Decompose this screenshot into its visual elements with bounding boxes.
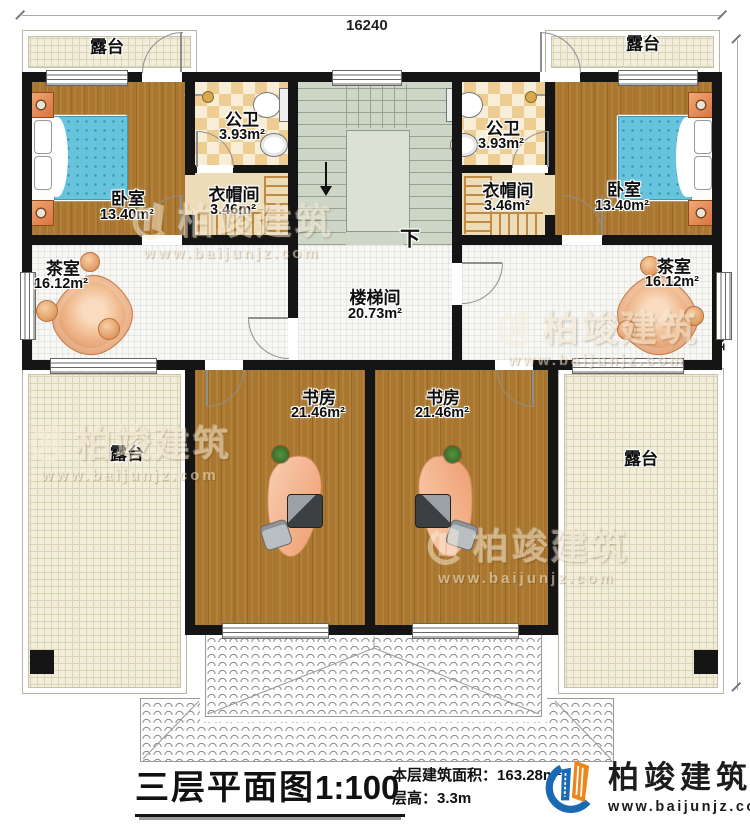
company-logo: 柏竣建筑 www.baijunjz.com [542,752,750,815]
pillow [34,156,52,190]
stair-direction-line [325,162,327,186]
room-area-bedroom-r: 13.40m² [595,198,649,214]
door-opening [205,360,243,370]
door-leaf [462,262,502,264]
window [618,70,698,86]
floor-height-label: 层高： [392,790,437,807]
room-area-bathroom-l: 3.93m² [219,127,265,143]
door-leaf [180,32,182,72]
window [716,272,732,340]
door-leaf [540,32,542,72]
dimension-line-right [737,40,738,690]
wall [452,72,462,370]
company-logo-icon [28,420,70,462]
drawing-info: 本层建筑面积：163.28m² 层高：3.3m [392,764,561,810]
door-leaf [248,317,288,319]
door-leaf [196,131,198,167]
plant-icon [272,446,289,463]
room-label-terrace-br: 露台 [624,445,658,470]
window [50,358,157,374]
company-name: 柏竣建筑 [608,752,750,797]
room-area-stairwell: 20.73m² [348,306,402,322]
room-label-terrace-tl: 露台 [90,33,124,58]
room-area-cloakroom-r: 3.46m² [484,198,530,214]
nightstand [688,200,714,226]
floor-area-label: 本层建筑面积： [392,767,497,784]
wall [185,370,195,635]
roof-tier-inner [205,633,542,717]
pouf [36,300,58,322]
dimension-tick [731,34,741,44]
watermark-company: 柏竣建筑 [473,518,629,570]
watermark-url: www.baijunjz.com [438,570,615,587]
watermark: 柏竣建筑 www.baijunjz.com [28,415,232,484]
door-opening [142,72,182,82]
floor-height-line: 层高：3.3m [392,787,561,810]
company-website: www.baijunjz.com [608,799,750,815]
stair-down-label: 下 [400,223,420,252]
bed-sheet-fold [676,117,694,197]
company-logo-icon [425,523,467,565]
watermark: 柏竣建筑 www.baijunjz.com [495,300,699,369]
room-label-stairwell: 楼梯间 [350,284,401,309]
window [46,70,128,86]
plant-icon [444,446,461,463]
door-leaf [532,370,534,406]
wall [365,370,375,635]
dimension-tick [731,682,741,692]
floor-height-value: 3.3m [437,790,471,807]
room-area-study-l: 21.46m² [291,405,345,421]
wall [548,370,558,635]
room-label-bedroom-r: 卧室 [607,176,641,201]
nightstand [688,92,714,118]
floor-area-line: 本层建筑面积：163.28m² [392,764,561,787]
watermark-company: 柏竣建筑 [543,300,699,352]
pouf [98,318,120,340]
drawing-title-text: 三层平面图 [135,769,315,807]
company-logo-icon [495,305,537,347]
room-area-tearoom-l: 16.12m² [34,276,88,292]
computer-monitor-icon [287,494,323,528]
dimension-line-top [22,15,722,16]
door-leaf [547,131,549,167]
door-opening [562,235,602,245]
pouf [80,252,100,272]
window [222,623,329,639]
dimension-top-value: 16240 [342,17,392,34]
door-opening [452,263,462,305]
window [332,70,402,86]
corner-column [694,650,718,674]
drawing-scale: 1:100 [315,769,399,806]
shower-head-icon [202,91,214,103]
watermark: 柏竣建筑 www.baijunjz.com [130,193,334,262]
room-label-terrace-tr: 露台 [626,30,660,55]
watermark-url: www.baijunjz.com [143,245,320,262]
door-opening [540,72,580,82]
pillow [34,120,52,154]
window [412,623,519,639]
stair-well-box [346,130,410,232]
company-logo-icon [542,755,600,813]
drawing-title: 三层平面图1:100 [135,760,405,817]
company-logo-icon [130,198,172,240]
watermark: 柏竣建筑 www.baijunjz.com [425,518,629,587]
pillow [694,120,712,154]
watermark-url: www.baijunjz.com [41,467,218,484]
shower-head-icon [525,91,537,103]
corner-column [30,650,54,674]
door-leaf [206,370,208,406]
room-area-study-r: 21.46m² [415,405,469,421]
watermark-company: 柏竣建筑 [76,415,232,467]
room-area-tearoom-r: 16.12m² [645,274,699,290]
watermark-url: www.baijunjz.com [508,352,685,369]
door-opening [545,175,555,215]
door-opening [288,318,298,360]
room-area-bathroom-r: 3.93m² [478,136,524,152]
watermark-company: 柏竣建筑 [178,193,334,245]
floor-plan: 16240 16020 [0,0,750,826]
pillow [694,156,712,190]
roof-hip-lines [206,634,541,716]
